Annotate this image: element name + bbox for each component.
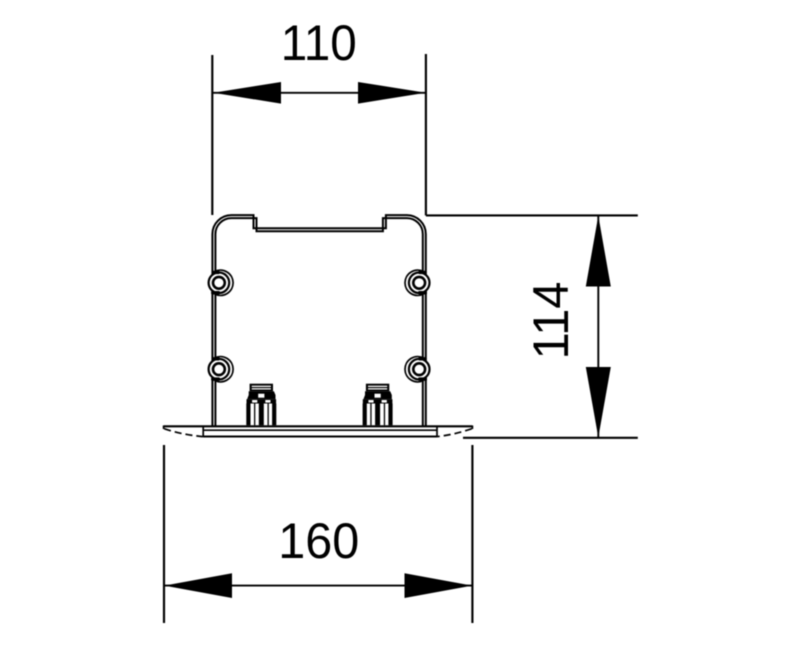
svg-text:110: 110 — [281, 14, 357, 71]
svg-text:114: 114 — [522, 282, 579, 360]
svg-text:160: 160 — [278, 512, 359, 569]
